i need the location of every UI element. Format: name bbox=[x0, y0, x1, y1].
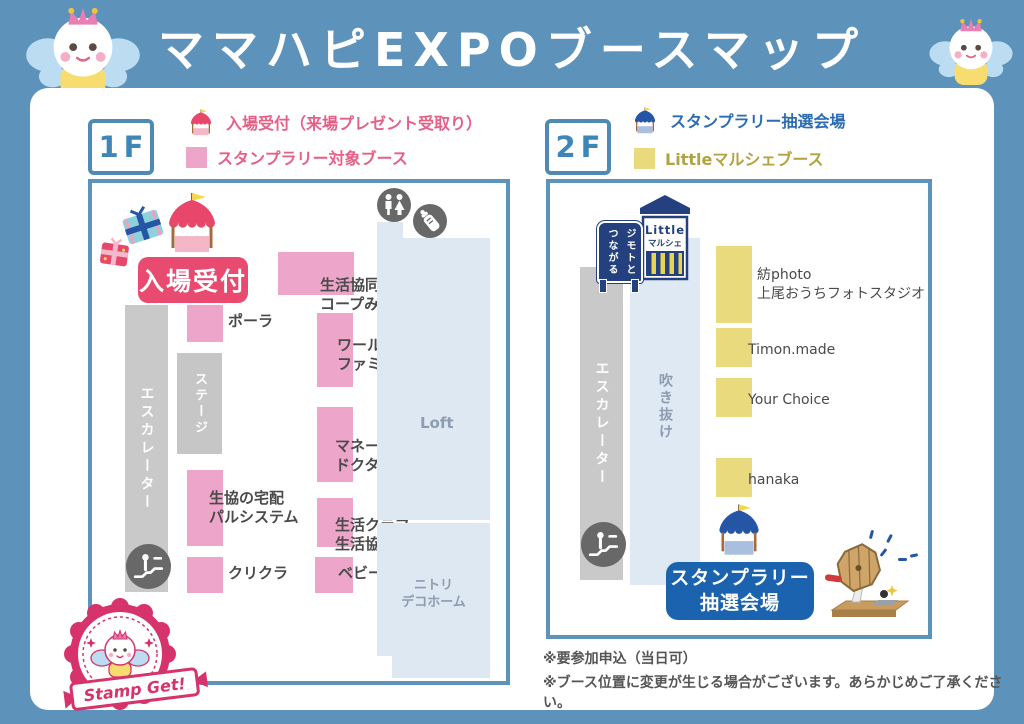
stage-label: ステージ bbox=[177, 353, 222, 454]
lottery-tent-icon bbox=[710, 501, 768, 559]
booth-crecla-label: クリクラ bbox=[228, 564, 288, 583]
nitori-area-step bbox=[392, 656, 490, 678]
note-booth-change: ※ブース位置に変更が生じる場合がございます。あらかじめご了承ください。 bbox=[543, 672, 1024, 712]
loft-label: Loft bbox=[420, 414, 454, 432]
pink-tent-icon bbox=[186, 108, 216, 137]
floor2-legend-lottery-label: スタンプラリー抽選会場 bbox=[670, 108, 846, 132]
lottery-machine-icon bbox=[824, 524, 924, 622]
little-sign-line1: Little bbox=[645, 223, 685, 237]
floor1-legend-entrance-label: 入場受付（来場プレゼント受取り） bbox=[226, 110, 482, 134]
jimoto-sign-leg bbox=[631, 279, 639, 293]
loft-area-step bbox=[377, 222, 403, 239]
booth-hanaka bbox=[716, 458, 752, 497]
booth-pola bbox=[187, 305, 223, 342]
stage-area: ステージ bbox=[177, 353, 222, 454]
entrance-reception-label: 入場受付 bbox=[138, 257, 248, 303]
restroom-icon bbox=[377, 188, 411, 222]
booth-tsumugi-photo-label: 紡photo 上尾おうちフォトスタジオ bbox=[757, 266, 925, 304]
escalator-icon bbox=[126, 544, 171, 589]
blue-tent-icon bbox=[630, 106, 660, 135]
booth-pola-label: ポーラ bbox=[228, 312, 273, 331]
floor2-legend-marche: Littleマルシェブース bbox=[634, 142, 824, 174]
jimoto-sign-text: ジモトと つながる bbox=[602, 228, 638, 276]
floor1-legend-stamp-booth-label: スタンプラリー対象ブース bbox=[217, 145, 408, 169]
booth-hanaka-label: hanaka bbox=[748, 471, 799, 490]
yellow-square-swatch bbox=[634, 148, 655, 169]
page-title: ママハピEXPOブースマップ bbox=[0, 14, 1024, 80]
floor2-tag: 2F bbox=[545, 119, 611, 175]
lottery-venue-label: スタンプラリー 抽選会場 bbox=[666, 562, 814, 620]
pink-square-swatch bbox=[186, 147, 207, 168]
jimoto-sign: ジモトと つながる bbox=[597, 221, 643, 283]
loft-area bbox=[377, 238, 490, 520]
booth-crecla bbox=[187, 557, 223, 593]
floor2-map: 吹き抜け エスカレーター Little マルシェ ジモト bbox=[546, 179, 932, 639]
booth-your-choice bbox=[716, 378, 752, 417]
booth-your-choice-label: Your Choice bbox=[748, 391, 830, 410]
note-participation: ※要参加申込（当日可） bbox=[543, 648, 697, 668]
booth-pal-system-label: 生協の宅配 パルシステム bbox=[209, 489, 299, 527]
fairy-mascot-right-icon bbox=[928, 14, 1014, 90]
jimoto-sign-leg bbox=[599, 279, 607, 293]
escalator-icon bbox=[581, 522, 626, 567]
little-marche-sign: Little マルシェ bbox=[637, 195, 693, 281]
floor2-legend-marche-label: Littleマルシェブース bbox=[665, 146, 824, 170]
entrance-tent-icon bbox=[158, 190, 226, 256]
floor1-legend-stamp-booth: スタンプラリー対象ブース bbox=[186, 141, 408, 173]
floor1-legend-entrance: 入場受付（来場プレゼント受取り） bbox=[186, 106, 482, 138]
little-sign-line2: マルシェ bbox=[648, 239, 682, 249]
booth-timon-made bbox=[716, 328, 752, 367]
booth-timon-made-label: Timon.made bbox=[748, 341, 835, 360]
expo-booth-map-poster: ママハピEXPOブースマップ 1F bbox=[0, 0, 1024, 724]
stamp-get-badge: Stamp Get! bbox=[58, 596, 218, 724]
booth-tsumugi-photo bbox=[716, 246, 752, 323]
nursing-room-icon bbox=[413, 204, 447, 238]
floor2-legend-lottery: スタンプラリー抽選会場 bbox=[630, 104, 846, 136]
floor1-tag: 1F bbox=[88, 119, 154, 175]
nitori-label: ニトリ デコホーム bbox=[377, 578, 490, 612]
atrium-label: 吹き抜け bbox=[655, 373, 675, 441]
